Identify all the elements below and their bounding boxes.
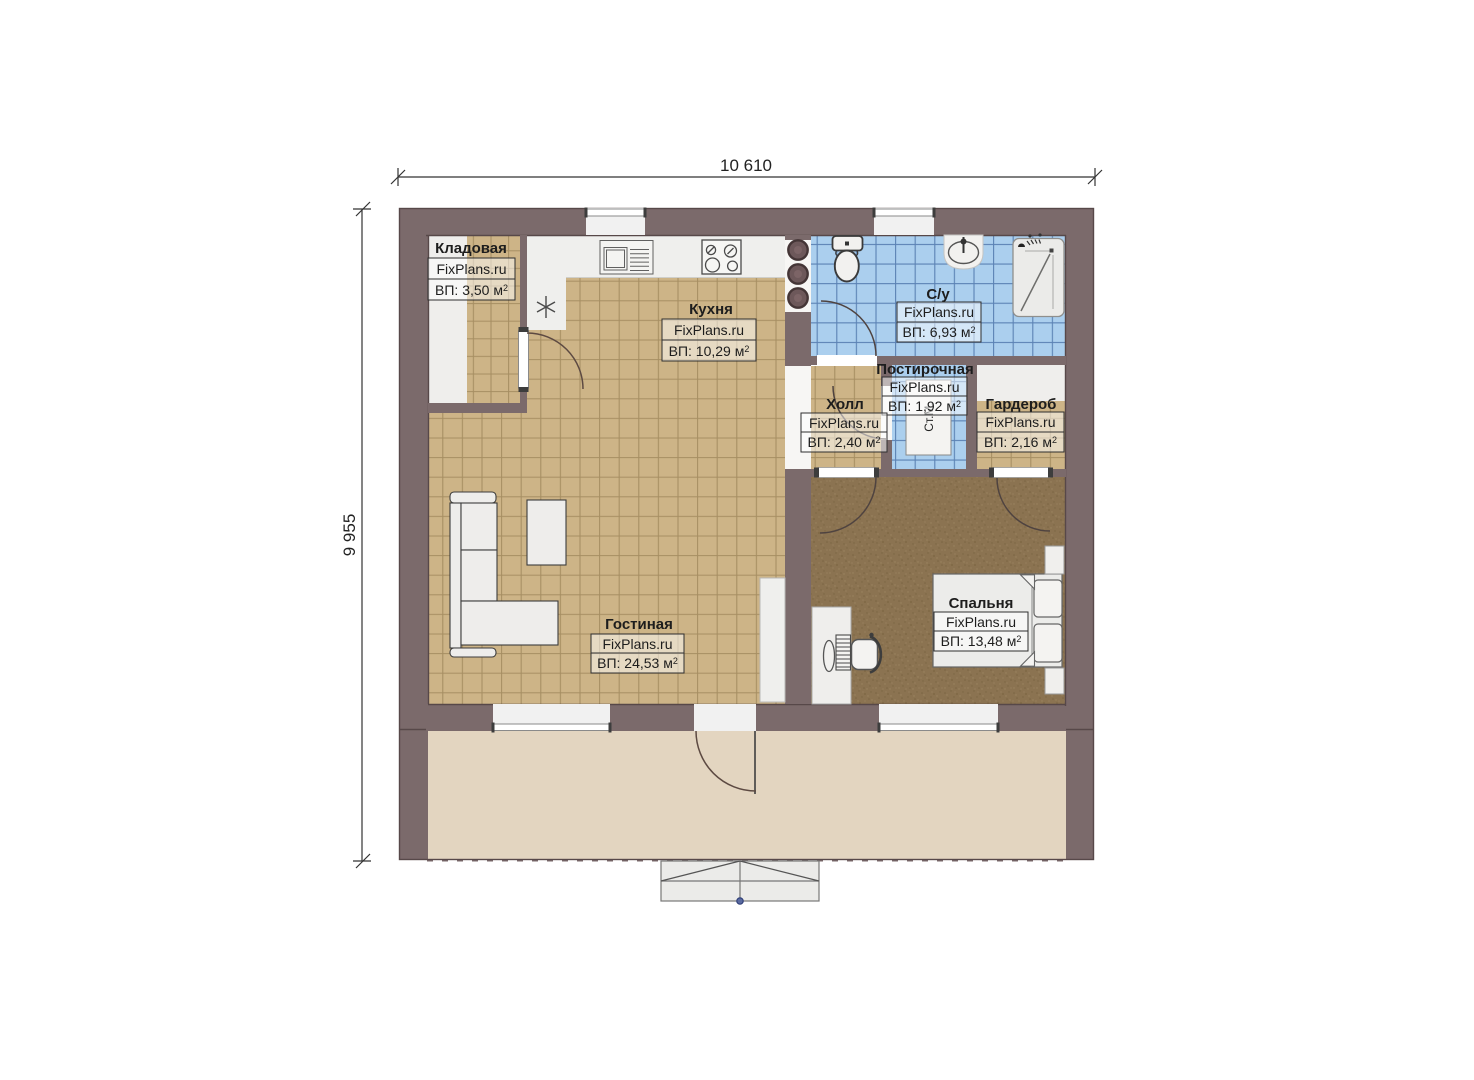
svg-text:FixPlans.ru: FixPlans.ru	[889, 379, 959, 395]
svg-text:ВП: 2,40 м2: ВП: 2,40 м2	[808, 434, 881, 450]
svg-text:Кладовая: Кладовая	[435, 240, 507, 257]
svg-text:ВП: 13,48 м2: ВП: 13,48 м2	[941, 633, 1022, 649]
svg-text:Постирочная: Постирочная	[876, 361, 973, 378]
svg-text:С/у: С/у	[926, 286, 950, 303]
svg-text:FixPlans.ru: FixPlans.ru	[436, 261, 506, 277]
svg-text:ВП: 6,93 м2: ВП: 6,93 м2	[903, 324, 976, 340]
svg-text:FixPlans.ru: FixPlans.ru	[809, 415, 879, 431]
svg-text:Гостиная: Гостиная	[605, 616, 673, 633]
svg-text:Кухня: Кухня	[689, 301, 733, 318]
svg-text:ВП: 1,92 м2: ВП: 1,92 м2	[888, 398, 961, 414]
svg-text:ВП: 3,50 м2: ВП: 3,50 м2	[435, 282, 508, 298]
svg-text:FixPlans.ru: FixPlans.ru	[904, 304, 974, 320]
svg-text:Гардероб: Гардероб	[986, 396, 1057, 413]
svg-text:ВП: 2,16 м2: ВП: 2,16 м2	[984, 434, 1057, 450]
svg-text:Холл: Холл	[826, 396, 864, 413]
svg-text:Спальня: Спальня	[949, 595, 1014, 612]
svg-text:FixPlans.ru: FixPlans.ru	[946, 614, 1016, 630]
svg-text:FixPlans.ru: FixPlans.ru	[985, 414, 1055, 430]
svg-text:10 610: 10 610	[720, 156, 772, 175]
svg-text:FixPlans.ru: FixPlans.ru	[602, 636, 672, 652]
svg-text:ВП: 10,29 м2: ВП: 10,29 м2	[669, 343, 750, 359]
svg-text:ВП: 24,53 м2: ВП: 24,53 м2	[597, 655, 678, 671]
svg-text:FixPlans.ru: FixPlans.ru	[674, 322, 744, 338]
svg-text:9 955: 9 955	[340, 514, 359, 557]
